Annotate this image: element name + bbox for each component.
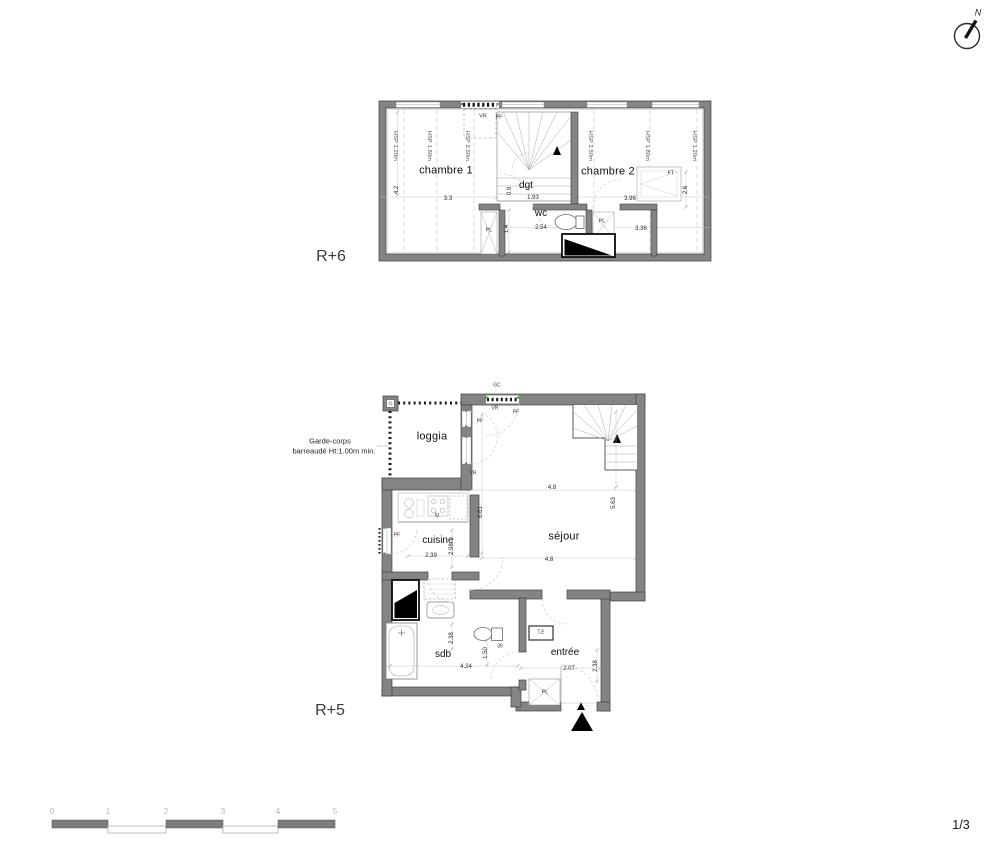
r6-rooflight <box>562 234 615 257</box>
r5-dim-ticks <box>388 410 637 682</box>
r5-garde-corps <box>390 403 461 478</box>
r5-door-arrow <box>577 703 585 711</box>
r5-bathtub <box>386 623 417 679</box>
r5-washer <box>424 579 455 599</box>
r5-duct <box>392 580 419 620</box>
r5-electrical-panel-box <box>529 626 553 640</box>
r6-toilet <box>555 215 584 230</box>
r5-entrance-arrow <box>571 712 593 731</box>
floor-plan-sheet: R+6 R+5 Garde-corps barreaudé Ht:1.00m m… <box>0 0 1000 857</box>
r5-entry-closet <box>529 679 560 705</box>
floor-plan-r6 <box>379 101 711 261</box>
r5-door-arcs <box>391 403 598 702</box>
r6-ft-window <box>637 167 681 201</box>
north-compass-icon <box>955 21 980 49</box>
floor-plan-r5 <box>377 394 645 731</box>
plan-drawing <box>0 0 1000 857</box>
r5-stairs <box>573 405 637 470</box>
r5-washbasin <box>427 602 454 618</box>
r6-velux-dashed <box>464 109 496 138</box>
r5-kitchen-counter <box>398 493 468 522</box>
r5-windows <box>380 396 520 555</box>
r5-dim-lines <box>390 412 636 684</box>
r6-stairs <box>497 112 578 204</box>
scale-bar <box>52 820 335 833</box>
